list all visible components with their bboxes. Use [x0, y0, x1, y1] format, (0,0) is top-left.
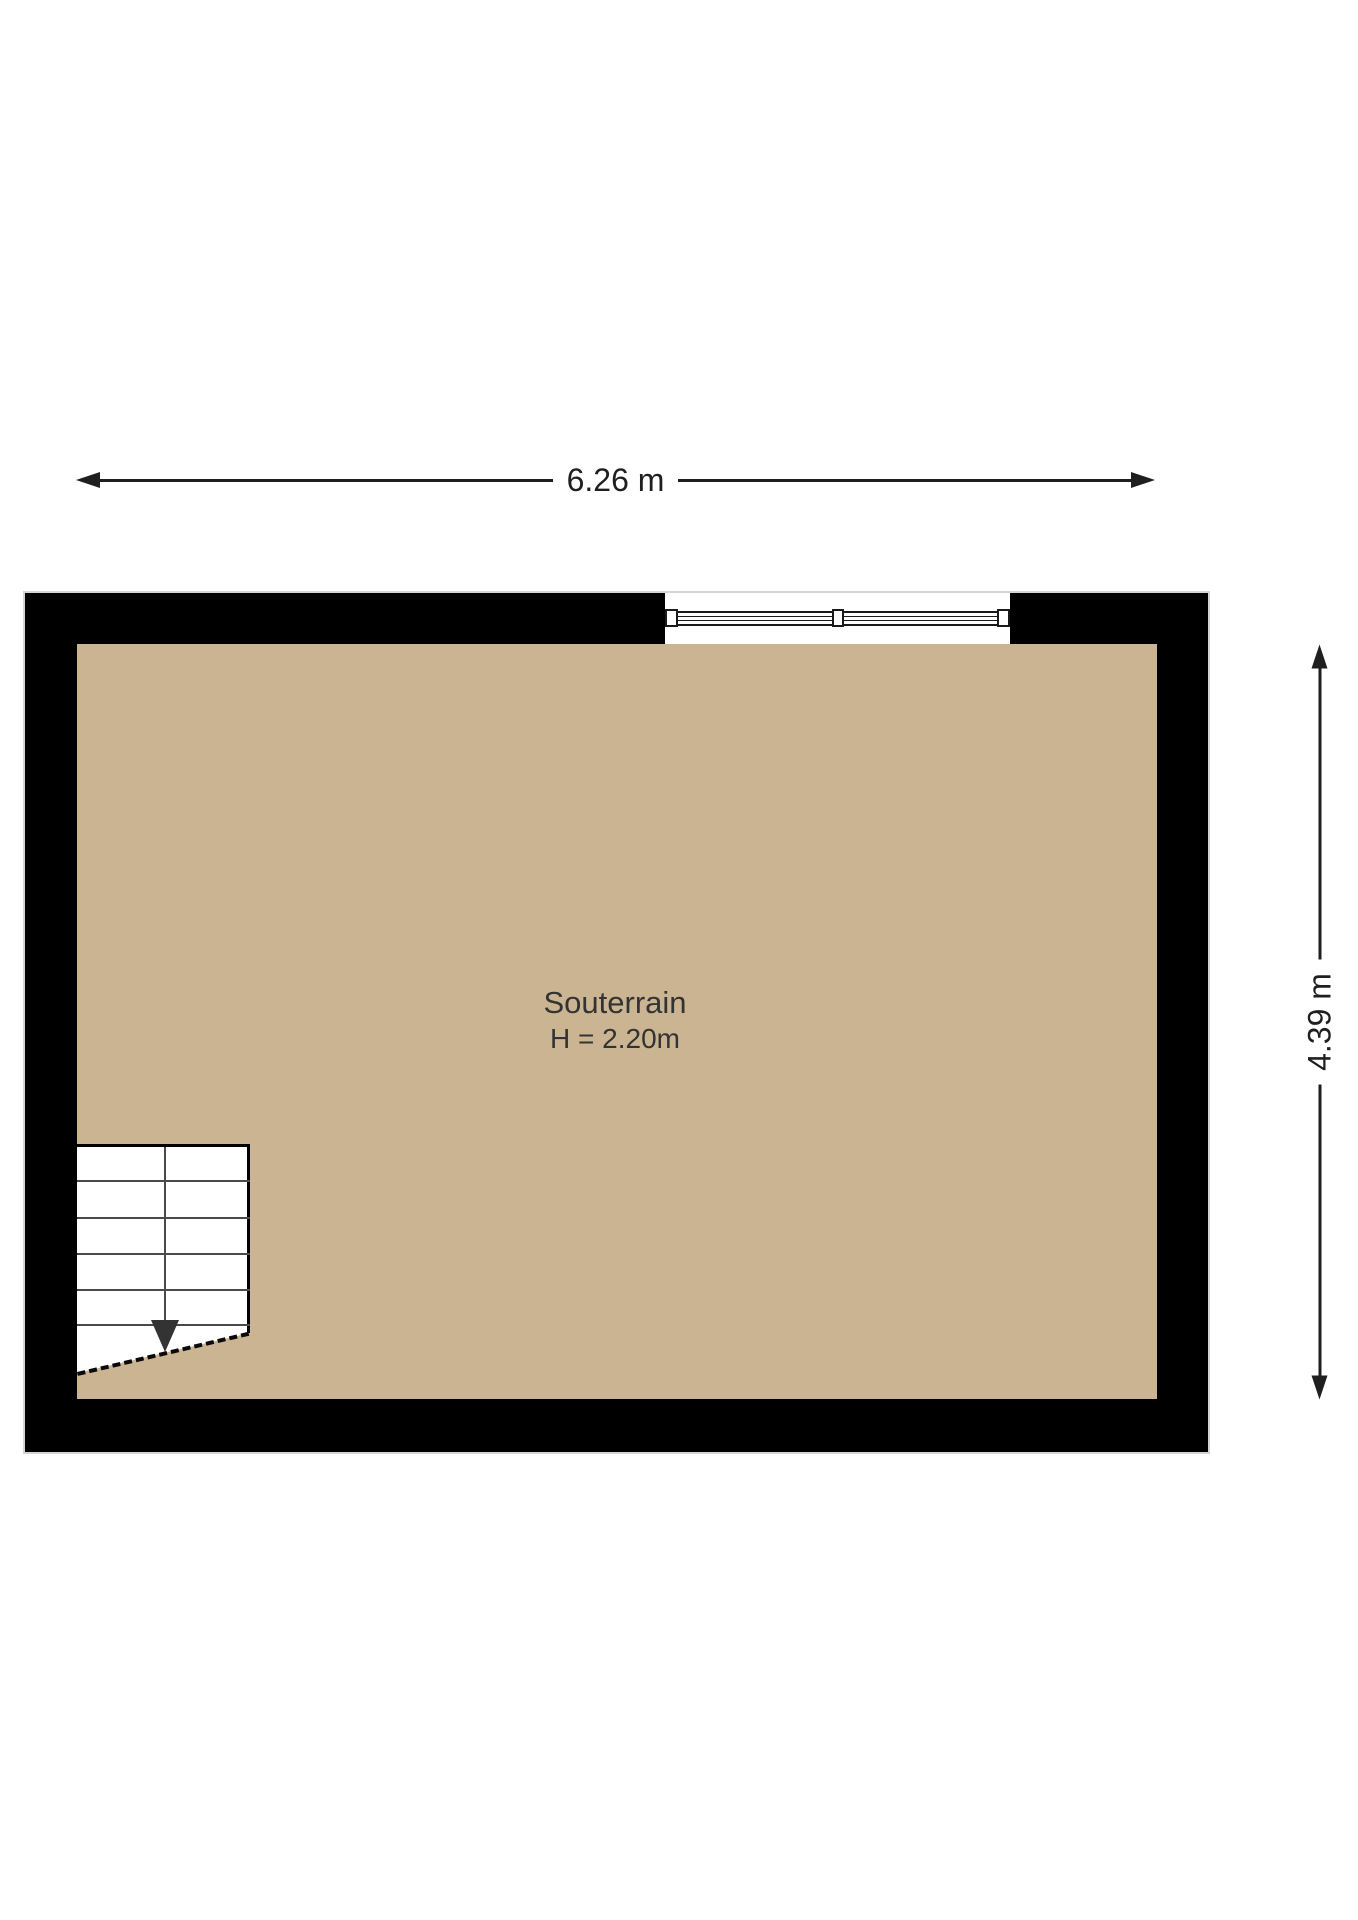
- room-name: Souterrain: [315, 984, 915, 1022]
- dimension-line-segment: [678, 479, 1131, 482]
- width-dimension: 6.26 m: [76, 462, 1155, 498]
- window-frame-post: [997, 609, 1010, 627]
- arrow-left-icon: [76, 472, 100, 488]
- room-label: Souterrain H = 2.20m: [315, 984, 915, 1056]
- stair-walkline: [164, 1147, 166, 1322]
- arrow-up-icon: [1312, 644, 1328, 668]
- dimension-line-segment: [1318, 1085, 1321, 1376]
- dimension-line-segment: [100, 479, 553, 482]
- room-ceiling-height: H = 2.20m: [315, 1022, 915, 1056]
- height-dimension: 4.39 m: [1302, 645, 1338, 1400]
- width-dimension-label: 6.26 m: [553, 462, 679, 498]
- dimension-line-segment: [1318, 668, 1321, 959]
- window-mullion: [832, 609, 844, 627]
- stair-direction-arrow-icon: [151, 1320, 179, 1352]
- window-frame-post: [665, 609, 678, 627]
- floorplan-canvas: 6.26 m Souterrain H = 2.20m 4.39 m: [0, 0, 1358, 1920]
- arrow-down-icon: [1312, 1376, 1328, 1400]
- height-dimension-label: 4.39 m: [1302, 959, 1338, 1085]
- staircase-right-edge: [247, 1144, 250, 1333]
- arrow-right-icon: [1131, 472, 1155, 488]
